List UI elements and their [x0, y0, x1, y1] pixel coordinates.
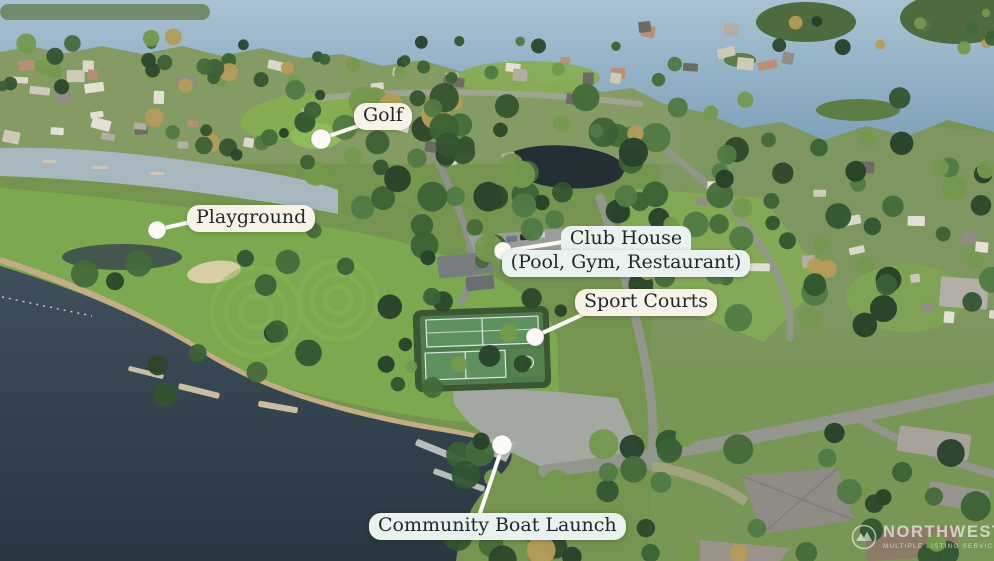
watermark-subtitle: MULTIPLE LISTING SERVICE [883, 543, 994, 550]
aerial-photo-scene [0, 0, 994, 561]
sport-courts-label: Sport Courts [575, 289, 717, 316]
watermark-brand: NORTHWEST [883, 524, 994, 541]
far-shore-strip [0, 4, 210, 20]
playground-label: Playground [187, 205, 315, 232]
callout-boat-launch: Community Boat Launch [369, 513, 626, 540]
boat-launch-label: Community Boat Launch [369, 513, 626, 540]
aerial-listing-photo: Golf Playground Club House (Pool, Gym, R… [0, 0, 994, 561]
callout-golf: Golf [354, 103, 412, 130]
mls-watermark: NORTHWEST MULTIPLE LISTING SERVICE [851, 524, 994, 550]
clubhouse-annex-roof [465, 275, 494, 292]
club-house-label-line1: Club House [561, 226, 691, 251]
golf-label: Golf [354, 103, 412, 130]
callout-club-house: Club House (Pool, Gym, Restaurant) [515, 226, 737, 277]
callout-playground: Playground [187, 205, 315, 232]
nwmls-mountain-logo-icon [851, 524, 877, 550]
club-house-label-line2: (Pool, Gym, Restaurant) [502, 250, 751, 277]
callout-sport-courts: Sport Courts [575, 289, 717, 316]
